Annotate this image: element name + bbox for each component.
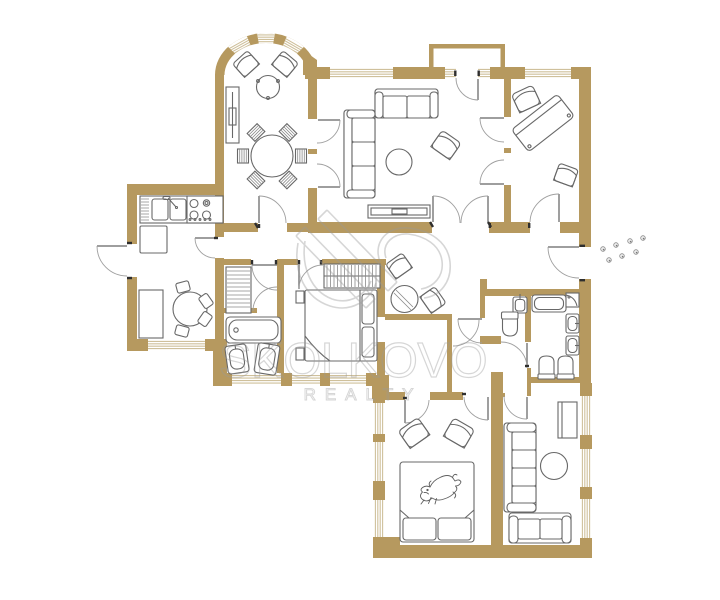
svg-text:REALTY: REALTY (304, 385, 423, 404)
svg-text:SKOLKOVO: SKOLKOVO (219, 334, 487, 388)
